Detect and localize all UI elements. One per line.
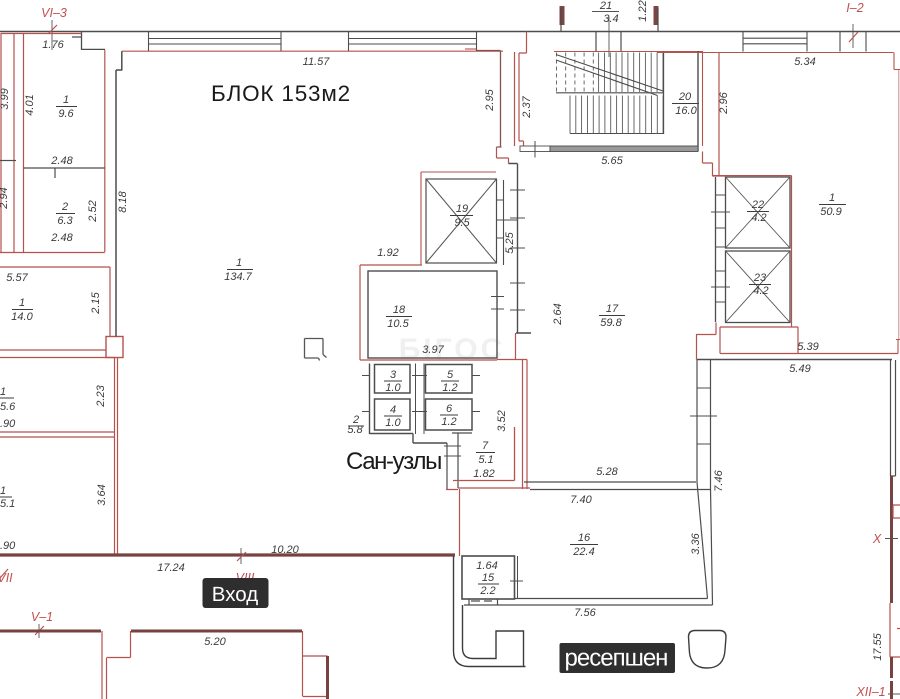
- svg-text:17: 17: [606, 303, 619, 315]
- svg-text:Сан-узлы: Сан-узлы: [346, 448, 441, 475]
- svg-text:2.95: 2.95: [484, 88, 496, 111]
- svg-text:9.5: 9.5: [454, 217, 470, 229]
- svg-text:5.49: 5.49: [789, 363, 810, 375]
- svg-text:50.9: 50.9: [820, 206, 841, 218]
- svg-text:16.0: 16.0: [675, 105, 697, 117]
- svg-text:БІГОС: БІГОС: [399, 333, 506, 366]
- svg-text:5.1: 5.1: [0, 498, 15, 510]
- svg-text:2.64: 2.64: [552, 303, 564, 325]
- svg-text:3.64: 3.64: [96, 484, 108, 505]
- svg-text:2.94: 2.94: [0, 187, 10, 209]
- svg-text:5.57: 5.57: [6, 272, 28, 284]
- svg-text:18: 18: [393, 304, 406, 316]
- svg-text:14.0: 14.0: [11, 311, 33, 323]
- svg-text:1.2: 1.2: [441, 416, 456, 428]
- svg-text:4.01: 4.01: [24, 94, 36, 115]
- svg-text:2.2: 2.2: [479, 585, 495, 597]
- svg-text:8.18: 8.18: [117, 190, 129, 212]
- svg-text:Вход: Вход: [212, 583, 258, 606]
- svg-text:VII: VII: [0, 571, 13, 585]
- svg-text:2.23: 2.23: [95, 384, 107, 407]
- svg-text:5.1: 5.1: [478, 454, 493, 466]
- svg-text:23: 23: [753, 272, 767, 284]
- svg-text:10.20: 10.20: [271, 544, 299, 556]
- svg-text:1.2: 1.2: [442, 382, 457, 394]
- svg-text:3.52: 3.52: [496, 410, 508, 431]
- svg-text:16: 16: [578, 532, 591, 544]
- svg-text:5.8: 5.8: [347, 424, 363, 436]
- svg-text:5.65: 5.65: [601, 155, 623, 167]
- svg-text:1: 1: [63, 94, 69, 106]
- svg-text:1.82: 1.82: [473, 468, 494, 480]
- svg-text:5.6: 5.6: [0, 401, 16, 413]
- svg-text:1: 1: [0, 485, 6, 497]
- svg-text:7.46: 7.46: [713, 469, 725, 491]
- svg-text:9.6: 9.6: [58, 108, 74, 120]
- svg-text:4.2: 4.2: [751, 212, 766, 224]
- svg-text:5.20: 5.20: [204, 636, 226, 648]
- svg-text:5.28: 5.28: [596, 466, 618, 478]
- svg-text:1.22: 1.22: [637, 0, 649, 21]
- svg-text:7.40: 7.40: [570, 494, 592, 506]
- svg-text:22: 22: [751, 199, 764, 211]
- svg-text:2.37: 2.37: [521, 95, 533, 118]
- svg-text:1: 1: [829, 192, 835, 204]
- svg-text:6: 6: [446, 403, 453, 415]
- svg-text:2.48: 2.48: [50, 232, 73, 244]
- svg-text:1.76: 1.76: [42, 39, 64, 51]
- svg-text:20: 20: [678, 91, 692, 103]
- svg-text:2.48: 2.48: [50, 155, 73, 167]
- svg-text:19: 19: [456, 203, 468, 215]
- svg-text:1: 1: [0, 386, 6, 398]
- svg-text:59.8: 59.8: [600, 317, 622, 329]
- svg-text:134.7: 134.7: [224, 271, 252, 283]
- svg-text:1.64: 1.64: [476, 560, 497, 572]
- svg-text:6.3: 6.3: [57, 215, 73, 227]
- svg-text:.90: .90: [0, 540, 16, 552]
- svg-text:17.55: 17.55: [872, 632, 884, 660]
- svg-text:1: 1: [19, 297, 25, 309]
- svg-text:БЛОК 153м2: БЛОК 153м2: [211, 81, 351, 106]
- svg-text:I–2: I–2: [846, 1, 863, 15]
- svg-text:5: 5: [447, 369, 454, 381]
- svg-text:V–1: V–1: [31, 610, 53, 624]
- svg-text:2.96: 2.96: [718, 91, 730, 114]
- svg-text:10.5: 10.5: [387, 318, 409, 330]
- svg-text:X: X: [872, 532, 882, 546]
- svg-text:5.25: 5.25: [504, 231, 516, 253]
- svg-text:3.4: 3.4: [603, 13, 618, 25]
- svg-text:17.24: 17.24: [157, 562, 185, 574]
- svg-text:7: 7: [482, 440, 489, 452]
- svg-text:1.0: 1.0: [385, 382, 401, 394]
- svg-text:7.56: 7.56: [574, 607, 596, 619]
- svg-text:5.39: 5.39: [797, 341, 818, 353]
- svg-text:3.97: 3.97: [422, 344, 444, 356]
- svg-text:2: 2: [61, 201, 68, 213]
- svg-text:3.36: 3.36: [690, 532, 702, 554]
- svg-text:15: 15: [482, 572, 495, 584]
- svg-text:2.15: 2.15: [90, 291, 102, 314]
- svg-text:4: 4: [390, 404, 396, 416]
- svg-text:22.4: 22.4: [572, 546, 594, 558]
- svg-text:1: 1: [236, 257, 242, 269]
- svg-text:VI–3: VI–3: [41, 6, 67, 20]
- svg-text:1.92: 1.92: [377, 247, 398, 259]
- svg-text:21: 21: [599, 0, 612, 12]
- svg-text:ресепшен: ресепшен: [565, 644, 668, 671]
- svg-text:3: 3: [390, 369, 397, 381]
- svg-text:XII–1: XII–1: [855, 685, 885, 699]
- svg-text:2.52: 2.52: [87, 200, 99, 222]
- svg-text:5.34: 5.34: [794, 56, 815, 68]
- svg-text:4.2: 4.2: [753, 285, 768, 297]
- svg-text:11.57: 11.57: [303, 56, 331, 68]
- svg-text:.90: .90: [0, 418, 16, 430]
- svg-text:3.99: 3.99: [0, 88, 11, 109]
- svg-text:1.0: 1.0: [385, 417, 401, 429]
